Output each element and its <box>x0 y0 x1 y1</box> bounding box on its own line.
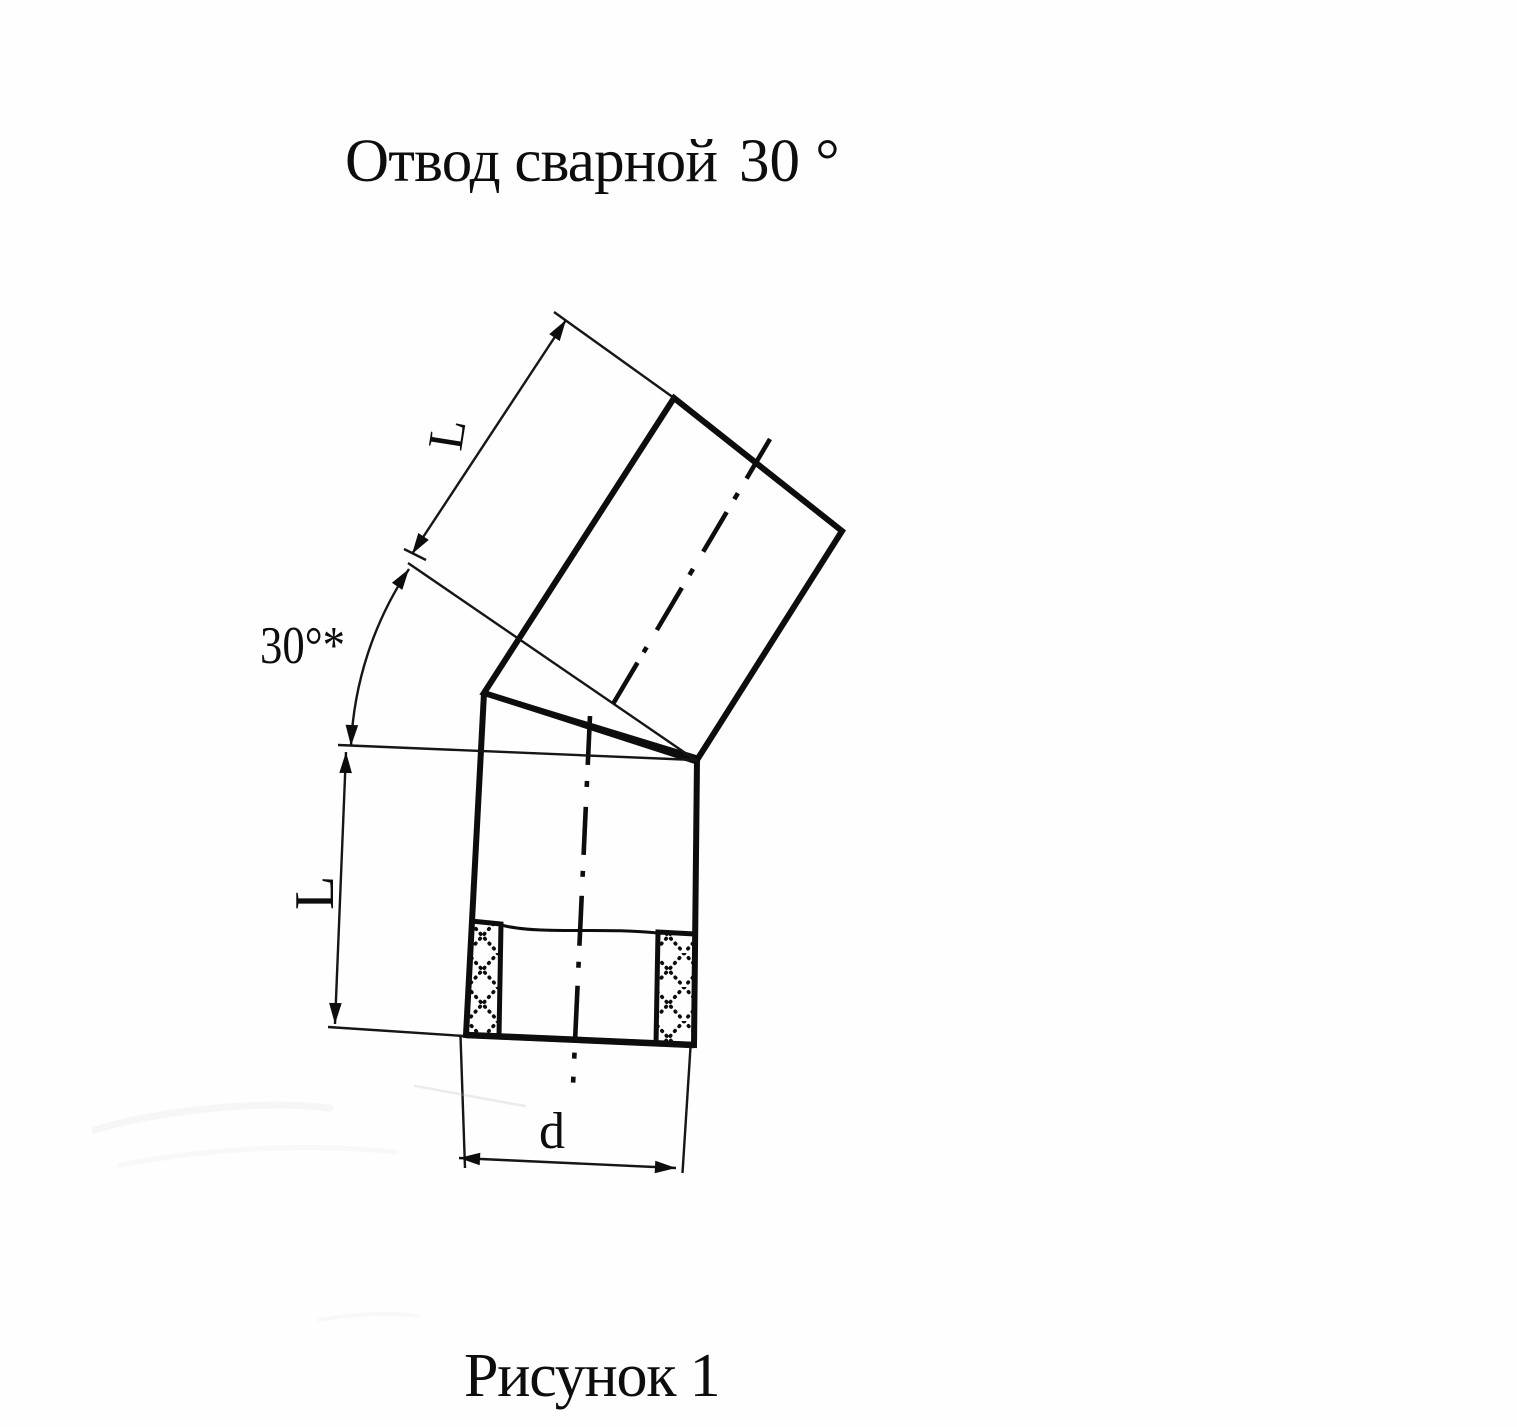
svg-text:d: d <box>539 1103 565 1160</box>
svg-text:Отвод сварной: Отвод сварной <box>345 128 717 195</box>
svg-text:L: L <box>284 876 346 910</box>
svg-text:30°*: 30°* <box>260 617 345 675</box>
svg-text:30 °: 30 ° <box>739 128 840 195</box>
svg-text:Рисунок 1: Рисунок 1 <box>464 1342 719 1410</box>
svg-text:L: L <box>417 415 477 454</box>
